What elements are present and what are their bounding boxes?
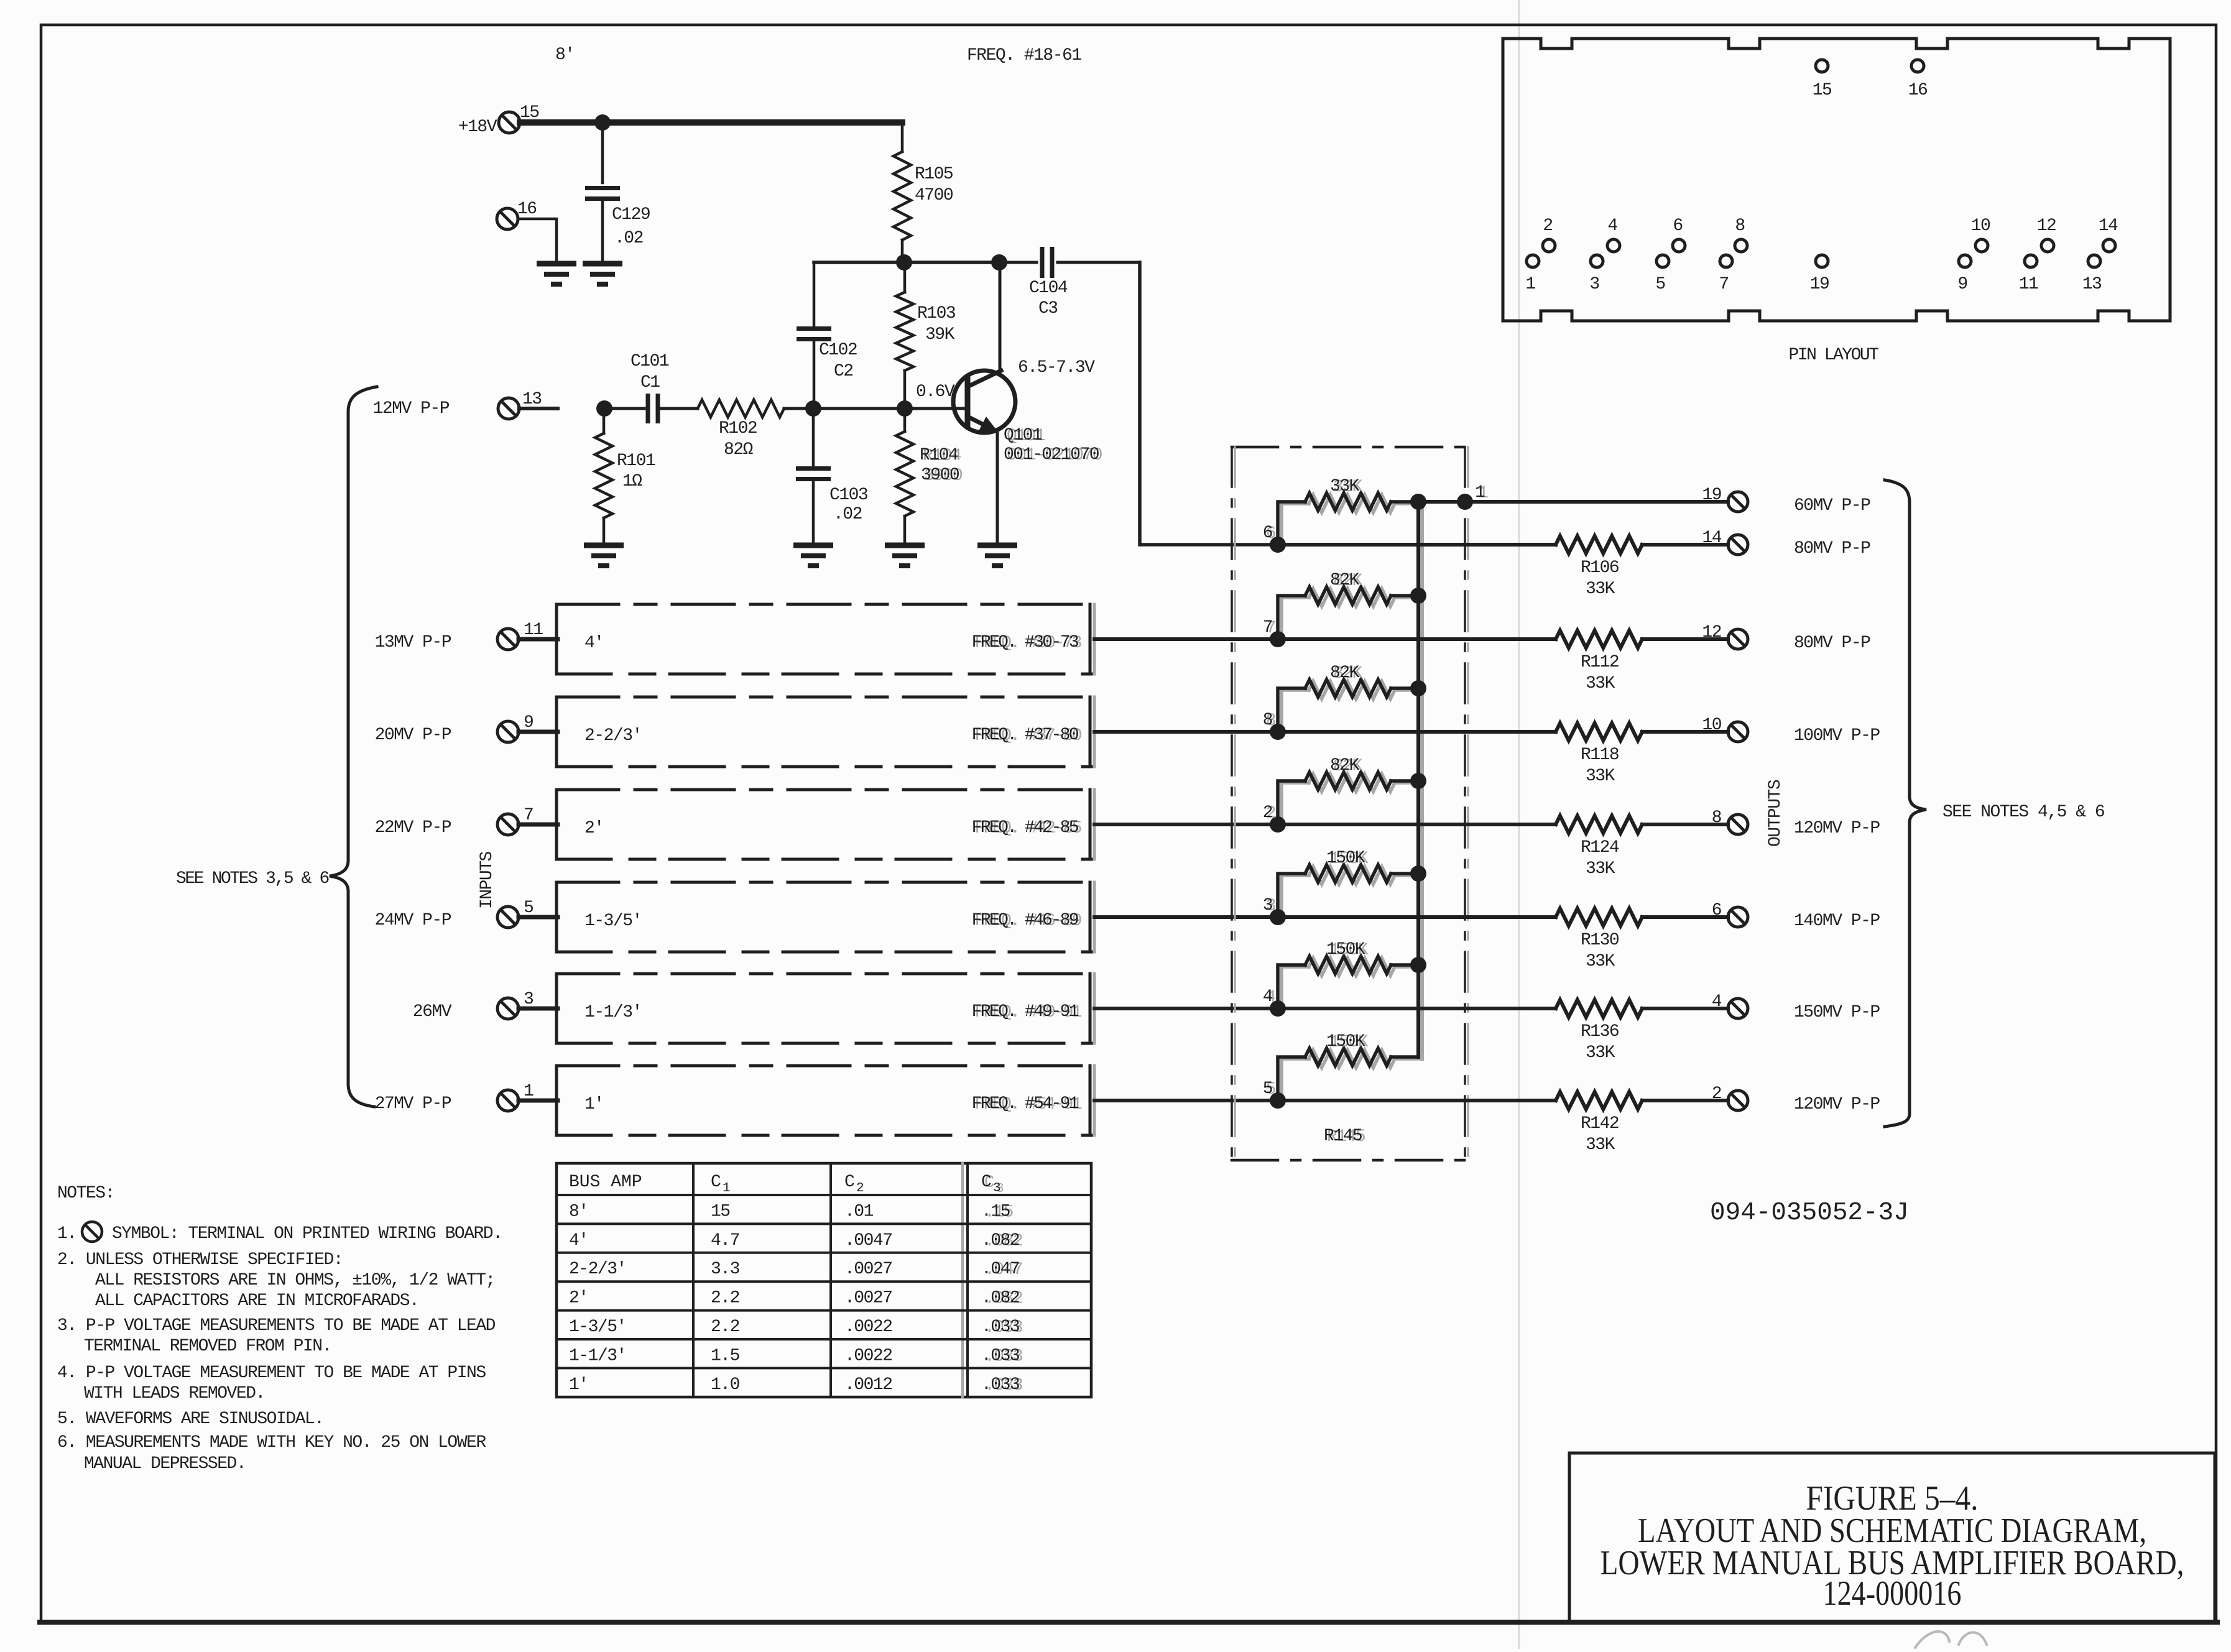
svg-text:80MV P-P: 80MV P-P (1794, 539, 1870, 558)
svg-text:13: 13 (2082, 275, 2102, 294)
svg-text:33K: 33K (1330, 477, 1360, 496)
svg-text:6: 6 (1673, 216, 1682, 236)
svg-text:1: 1 (524, 1082, 533, 1101)
svg-text:120MV P-P: 120MV P-P (1794, 1095, 1880, 1114)
svg-text:33K: 33K (1586, 859, 1615, 879)
svg-text:3: 3 (1589, 275, 1599, 294)
svg-text:R136: R136 (1581, 1022, 1619, 1041)
svg-text:SEE NOTES 3,5 & 6: SEE NOTES 3,5 & 6 (176, 869, 328, 888)
svg-text:FREQ. #18-61: FREQ. #18-61 (967, 46, 1081, 65)
svg-text:80MV P-P: 80MV P-P (1794, 634, 1870, 653)
svg-text:2': 2' (569, 1289, 588, 1308)
svg-text:33K: 33K (1586, 1135, 1615, 1155)
svg-text:.033: .033 (981, 1375, 1020, 1395)
svg-text:5: 5 (1263, 1079, 1273, 1099)
svg-text:8: 8 (1263, 711, 1272, 730)
svg-text:82K: 82K (1330, 756, 1360, 775)
svg-text:NOTES:: NOTES: (57, 1184, 114, 1203)
svg-text:2. UNLESS OTHERWISE SPECIFIED:: 2. UNLESS OTHERWISE SPECIFIED: (57, 1250, 343, 1270)
svg-text:C2: C2 (834, 362, 853, 381)
svg-text:FREQ. #46-89: FREQ. #46-89 (972, 911, 1078, 930)
svg-text:6: 6 (1263, 524, 1272, 543)
svg-text:4: 4 (1712, 992, 1722, 1012)
svg-text:R124: R124 (1581, 838, 1619, 857)
svg-text:4700: 4700 (915, 186, 953, 205)
svg-text:2: 2 (856, 1181, 864, 1196)
svg-text:R106: R106 (1581, 558, 1619, 578)
svg-text:.047: .047 (981, 1260, 1019, 1279)
svg-text:13: 13 (522, 390, 542, 409)
svg-text:1.: 1. (57, 1224, 76, 1244)
svg-text:C: C (711, 1173, 721, 1192)
svg-text:10: 10 (1971, 216, 1990, 236)
svg-text:C129: C129 (612, 205, 650, 224)
svg-text:12: 12 (1702, 623, 1721, 642)
svg-text:C: C (981, 1173, 991, 1192)
svg-text:5: 5 (1655, 275, 1665, 294)
svg-text:3900: 3900 (921, 466, 959, 485)
svg-text:1.0: 1.0 (711, 1375, 740, 1395)
svg-text:C101: C101 (630, 352, 669, 371)
svg-text:4: 4 (1607, 216, 1617, 236)
svg-text:FREQ. #37-80: FREQ. #37-80 (972, 726, 1079, 745)
svg-text:8': 8' (555, 45, 575, 65)
svg-text:33K: 33K (1586, 952, 1615, 971)
svg-text:150K: 150K (1326, 940, 1365, 959)
svg-text:16: 16 (517, 200, 537, 219)
svg-text:1-1/3': 1-1/3' (584, 1003, 642, 1022)
svg-text:6.5-7.3V: 6.5-7.3V (1018, 358, 1095, 377)
svg-text:1-3/5': 1-3/5' (569, 1317, 626, 1337)
svg-text:124-000016: 124-000016 (1823, 1574, 1962, 1613)
svg-text:26MV: 26MV (413, 1002, 452, 1022)
svg-text:R103: R103 (917, 304, 956, 323)
svg-text:82Ω: 82Ω (724, 440, 754, 459)
svg-text:FREQ. #30-73: FREQ. #30-73 (972, 633, 1079, 652)
svg-text:1': 1' (584, 1095, 604, 1114)
svg-text:C104: C104 (1029, 279, 1068, 298)
svg-text:C3: C3 (1038, 299, 1058, 318)
svg-text:1-3/5': 1-3/5' (584, 911, 642, 931)
svg-text:4': 4' (584, 634, 604, 653)
svg-text:.02: .02 (833, 505, 862, 524)
svg-text:3: 3 (524, 990, 533, 1009)
svg-text:1Ω: 1Ω (622, 472, 642, 491)
svg-text:19: 19 (1702, 486, 1721, 505)
svg-text:12: 12 (2037, 216, 2056, 236)
svg-text:1: 1 (723, 1181, 730, 1196)
svg-text:150K: 150K (1326, 849, 1365, 868)
svg-text:16: 16 (1908, 81, 1928, 100)
svg-text:R104: R104 (920, 446, 958, 465)
svg-text:ALL CAPACITORS ARE IN MICROFAR: ALL CAPACITORS ARE IN MICROFARADS. (95, 1291, 418, 1311)
svg-text:ALL RESISTORS ARE IN OHMS, ±10: ALL RESISTORS ARE IN OHMS, ±10%, 1/2 WAT… (95, 1271, 495, 1290)
svg-text:8: 8 (1735, 216, 1744, 236)
svg-text:FREQ. #54-91: FREQ. #54-91 (972, 1094, 1079, 1114)
svg-text:.082: .082 (981, 1231, 1019, 1250)
svg-text:FREQ. #49-91: FREQ. #49-91 (972, 1002, 1079, 1022)
svg-text:1-1/3': 1-1/3' (569, 1346, 626, 1365)
svg-text:TERMINAL REMOVED FROM PIN.: TERMINAL REMOVED FROM PIN. (84, 1337, 331, 1356)
svg-text:.082: .082 (981, 1289, 1019, 1308)
svg-text:MANUAL DEPRESSED.: MANUAL DEPRESSED. (84, 1454, 246, 1474)
svg-text:2-2/3': 2-2/3' (569, 1260, 626, 1279)
svg-text:1: 1 (1475, 483, 1485, 502)
svg-text:6. MEASUREMENTS MADE WITH KEY: 6. MEASUREMENTS MADE WITH KEY NO. 25 ON … (57, 1433, 486, 1452)
svg-text:2.2: 2.2 (711, 1289, 739, 1308)
svg-text:3.3: 3.3 (711, 1260, 740, 1279)
svg-text:9: 9 (524, 713, 533, 732)
svg-text:R102: R102 (719, 419, 757, 438)
svg-text:.0022: .0022 (844, 1317, 892, 1337)
svg-text:15: 15 (1813, 81, 1832, 100)
svg-text:.02: .02 (614, 229, 643, 248)
svg-text:.0022: .0022 (844, 1346, 892, 1365)
svg-text:9: 9 (1957, 275, 1967, 294)
svg-text:0.6V: 0.6V (916, 382, 955, 402)
svg-text:14: 14 (2099, 216, 2118, 236)
svg-text:3: 3 (993, 1181, 1000, 1196)
svg-text:33K: 33K (1586, 1043, 1615, 1063)
svg-text:82K: 82K (1330, 663, 1360, 683)
svg-text:20MV P-P: 20MV P-P (375, 726, 451, 745)
svg-text:+18V: +18V (458, 118, 497, 137)
svg-text:R145: R145 (1324, 1127, 1362, 1146)
svg-text:.01: .01 (844, 1202, 874, 1221)
svg-text:33K: 33K (1586, 767, 1615, 786)
svg-text:C1: C1 (640, 373, 660, 392)
svg-text:100MV P-P: 100MV P-P (1794, 726, 1880, 745)
svg-text:2: 2 (1543, 216, 1552, 236)
svg-text:6: 6 (1712, 901, 1721, 920)
svg-text:39K: 39K (925, 325, 955, 344)
svg-text:094-035052-3J: 094-035052-3J (1710, 1199, 1909, 1227)
svg-text:SYMBOL: TERMINAL ON PRINTED WI: SYMBOL: TERMINAL ON PRINTED WIRING BOARD… (112, 1224, 502, 1244)
svg-text:24MV P-P: 24MV P-P (375, 911, 451, 930)
svg-text:INPUTS: INPUTS (478, 851, 497, 909)
svg-text:2-2/3': 2-2/3' (584, 726, 642, 745)
svg-text:11: 11 (2019, 275, 2038, 294)
svg-text:1.5: 1.5 (711, 1346, 740, 1365)
svg-text:FREQ. #42-85: FREQ. #42-85 (972, 818, 1079, 838)
svg-text:10: 10 (1702, 716, 1721, 735)
svg-text:22MV P-P: 22MV P-P (375, 818, 451, 838)
svg-text:Q101: Q101 (1004, 426, 1042, 445)
svg-text:BUS AMP: BUS AMP (569, 1173, 642, 1192)
svg-text:4.7: 4.7 (711, 1231, 739, 1250)
svg-text:001-021070: 001-021070 (1004, 445, 1099, 464)
svg-text:.0027: .0027 (844, 1289, 892, 1308)
svg-text:C103: C103 (829, 486, 868, 505)
svg-text:R142: R142 (1581, 1114, 1619, 1133)
svg-text:.0047: .0047 (844, 1231, 892, 1250)
svg-text:33K: 33K (1586, 579, 1615, 599)
svg-text:C: C (844, 1173, 854, 1192)
svg-text:7: 7 (1719, 275, 1728, 294)
svg-text:120MV P-P: 120MV P-P (1794, 819, 1880, 838)
svg-text:7: 7 (1263, 618, 1272, 637)
svg-text:15: 15 (711, 1202, 730, 1221)
svg-text:2: 2 (1712, 1084, 1721, 1104)
svg-text:4. P-P VOLTAGE MEASUREMENT TO: 4. P-P VOLTAGE MEASUREMENT TO BE MADE AT… (57, 1364, 486, 1383)
svg-text:27MV P-P: 27MV P-P (375, 1094, 451, 1114)
svg-text:R130: R130 (1581, 931, 1619, 950)
svg-text:R118: R118 (1581, 745, 1619, 765)
svg-text:SEE NOTES 4,5 & 6: SEE NOTES 4,5 & 6 (1942, 803, 2104, 822)
svg-text:4: 4 (1263, 987, 1273, 1007)
svg-text:R112: R112 (1581, 653, 1619, 672)
svg-text:R105: R105 (915, 165, 953, 184)
svg-text:8: 8 (1712, 808, 1721, 828)
svg-text:11: 11 (524, 621, 543, 640)
svg-text:1: 1 (1525, 275, 1535, 294)
svg-text:13MV P-P: 13MV P-P (375, 633, 451, 652)
svg-text:.15: .15 (981, 1202, 1010, 1221)
svg-text:19: 19 (1810, 275, 1829, 294)
svg-text:2: 2 (1263, 803, 1272, 823)
svg-text:.0012: .0012 (844, 1375, 892, 1395)
svg-text:14: 14 (1702, 528, 1721, 548)
svg-text:4': 4' (569, 1231, 588, 1250)
svg-text:150MV P-P: 150MV P-P (1794, 1003, 1880, 1022)
svg-text:2': 2' (584, 819, 604, 838)
svg-text:.033: .033 (981, 1346, 1020, 1365)
svg-text:.033: .033 (981, 1317, 1020, 1337)
svg-text:140MV P-P: 140MV P-P (1794, 911, 1880, 931)
svg-text:12MV P-P: 12MV P-P (373, 399, 450, 418)
svg-text:150K: 150K (1326, 1032, 1365, 1051)
svg-text:C102: C102 (819, 341, 857, 360)
svg-text:5: 5 (524, 898, 533, 918)
svg-text:PIN LAYOUT: PIN LAYOUT (1788, 346, 1878, 365)
svg-text:.0027: .0027 (844, 1260, 892, 1279)
svg-text:5. WAVEFORMS ARE SINUSOIDAL.: 5. WAVEFORMS ARE SINUSOIDAL. (57, 1410, 323, 1429)
svg-text:2.2: 2.2 (711, 1317, 739, 1337)
svg-text:WITH LEADS REMOVED.: WITH LEADS REMOVED. (84, 1384, 265, 1403)
svg-text:7: 7 (524, 806, 533, 825)
svg-text:33K: 33K (1586, 674, 1615, 693)
svg-text:82K: 82K (1330, 571, 1360, 590)
svg-text:R101: R101 (617, 451, 655, 471)
svg-text:60MV P-P: 60MV P-P (1794, 496, 1870, 515)
svg-text:1': 1' (569, 1375, 588, 1395)
svg-text:3: 3 (1263, 896, 1273, 915)
svg-text:8': 8' (569, 1202, 588, 1221)
svg-text:OUTPUTS: OUTPUTS (1766, 780, 1785, 847)
svg-text:3. P-P VOLTAGE MEASUREMENTS TO: 3. P-P VOLTAGE MEASUREMENTS TO BE MADE A… (57, 1316, 496, 1336)
